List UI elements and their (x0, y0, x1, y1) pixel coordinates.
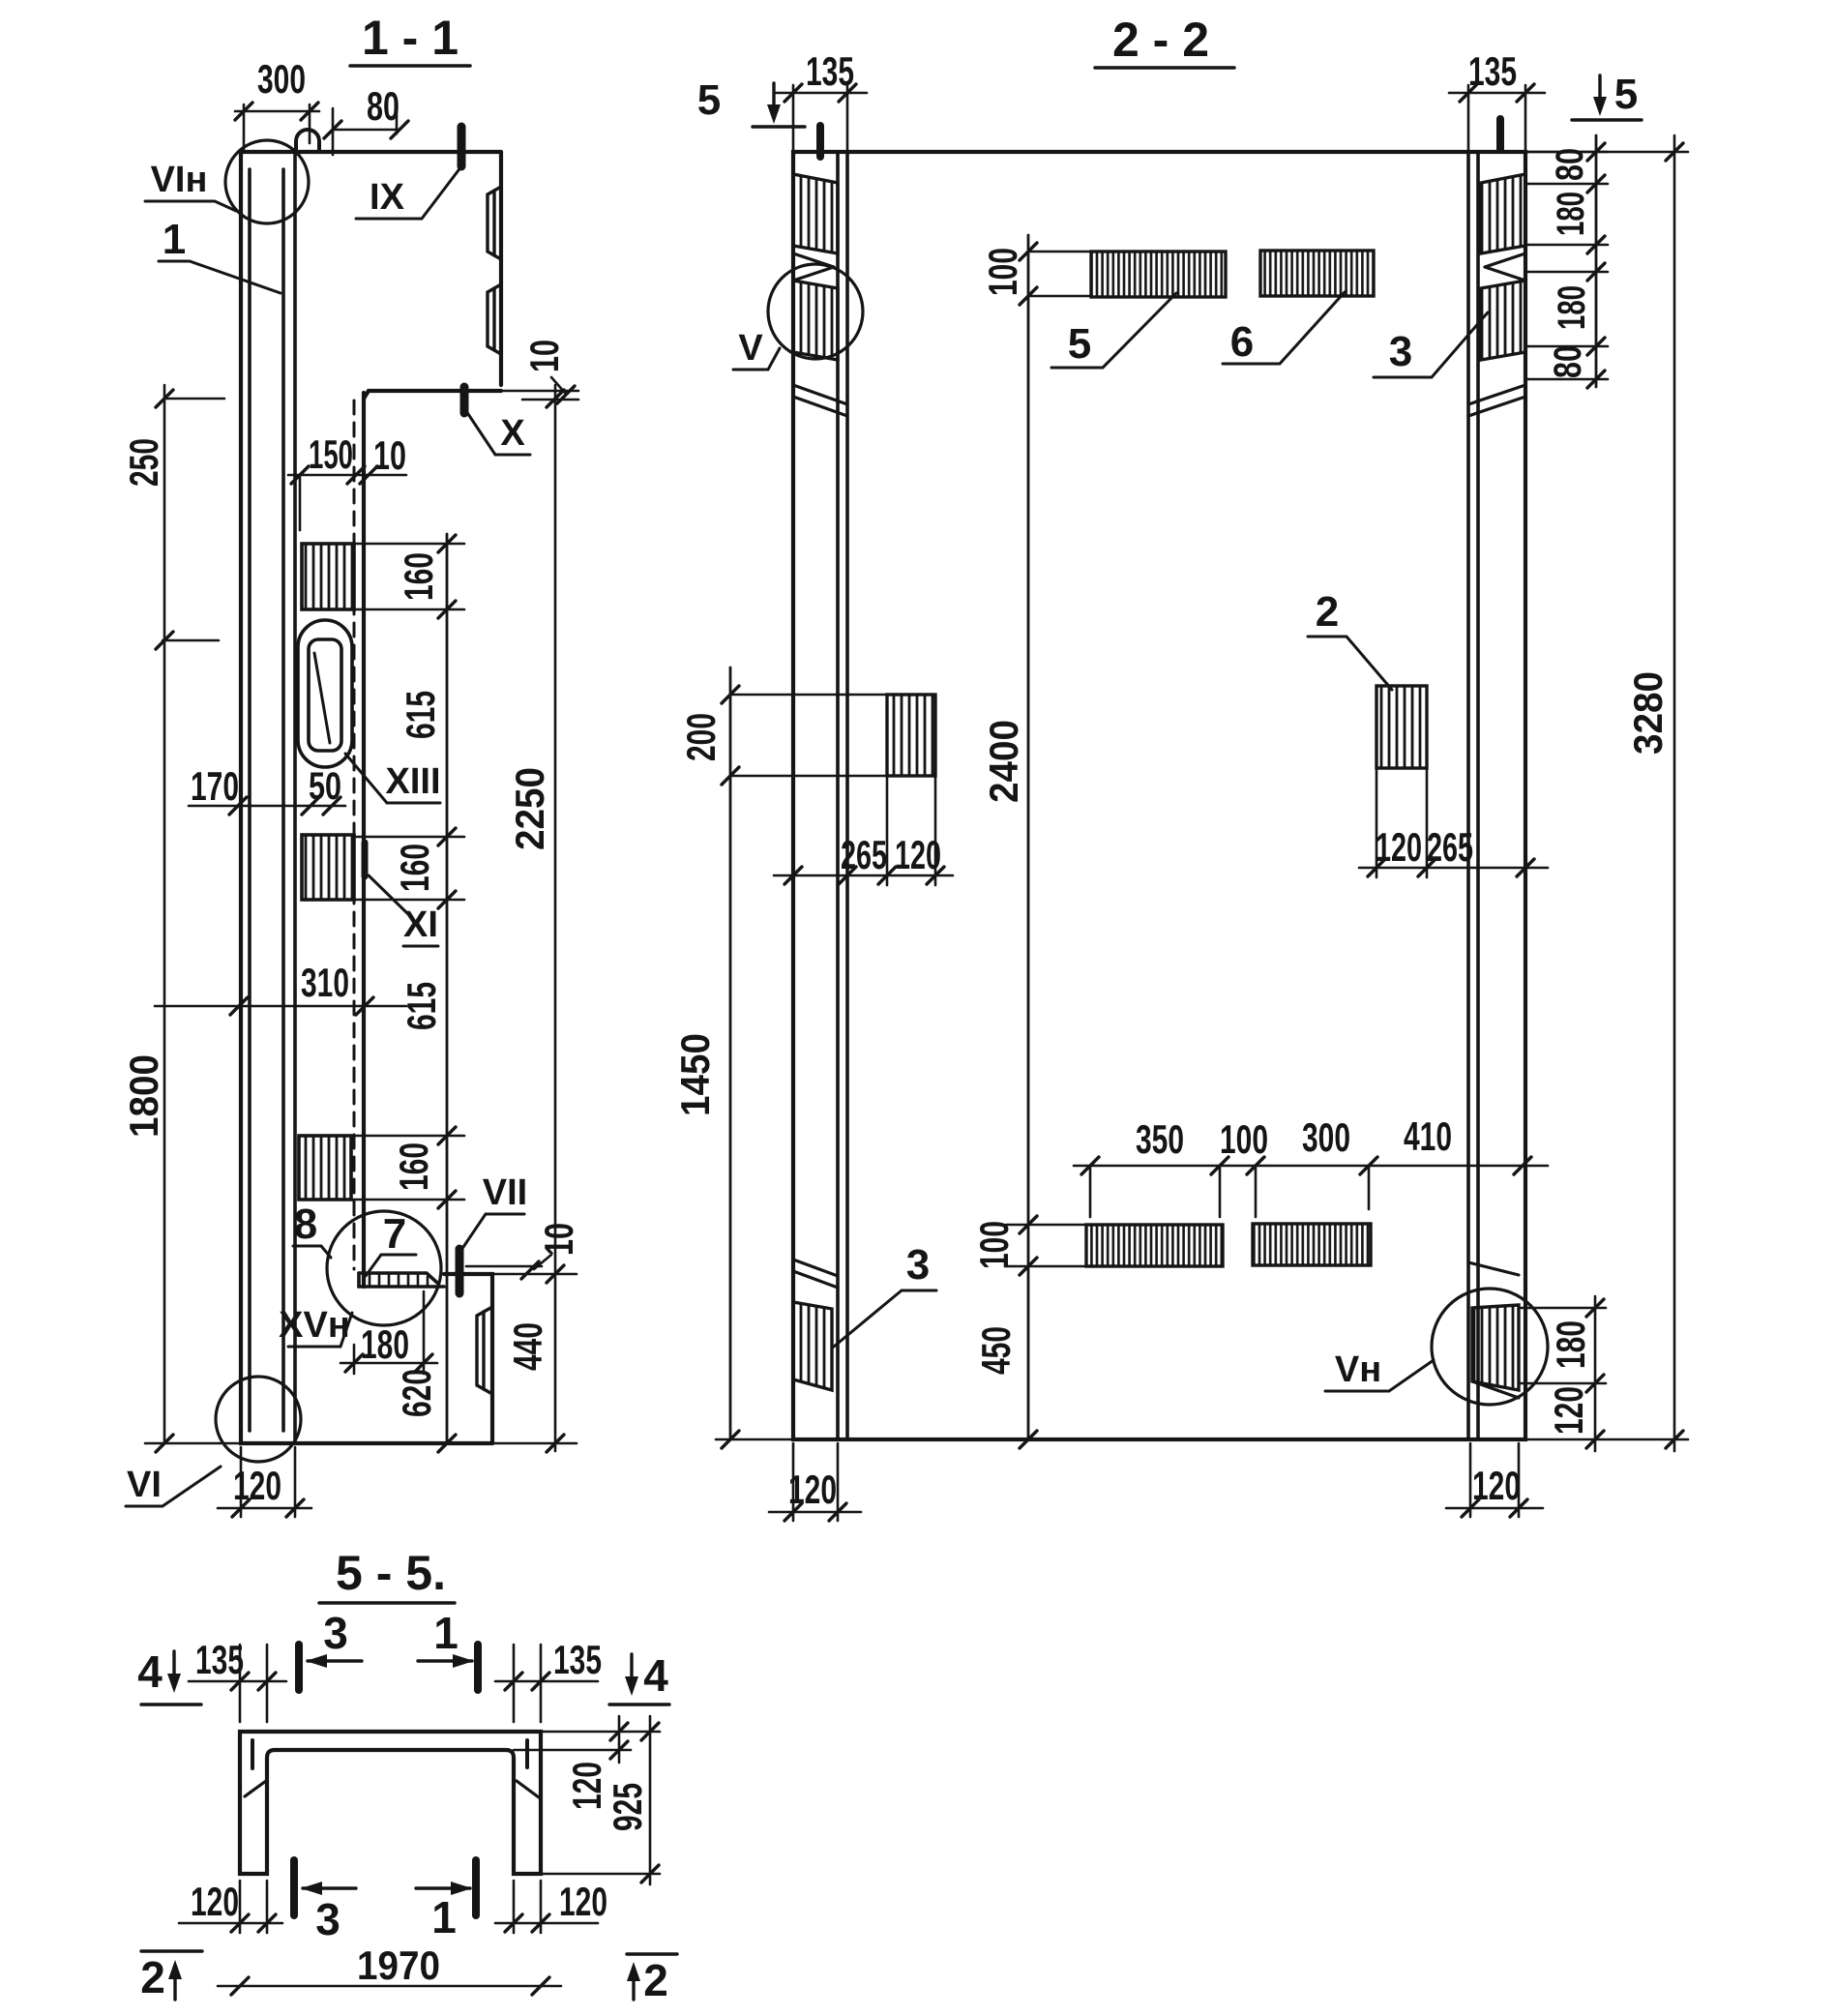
svg-text:150: 150 (309, 431, 353, 477)
svg-text:300: 300 (257, 56, 306, 102)
svg-text:310: 310 (301, 960, 349, 1005)
svg-text:XIII: XIII (385, 761, 440, 802)
svg-text:80: 80 (367, 83, 400, 129)
svg-text:10: 10 (521, 340, 567, 372)
svg-text:120: 120 (1546, 1386, 1591, 1435)
svg-text:300: 300 (1302, 1114, 1350, 1160)
svg-text:VI: VI (127, 1465, 162, 1505)
svg-text:80: 80 (1547, 345, 1589, 378)
svg-text:120: 120 (1376, 824, 1422, 870)
svg-text:180: 180 (1548, 1320, 1593, 1369)
svg-text:170: 170 (191, 763, 239, 809)
svg-text:3: 3 (323, 1608, 348, 1658)
svg-text:180: 180 (1550, 192, 1592, 236)
svg-text:Vн: Vн (1335, 1349, 1381, 1390)
svg-text:4: 4 (137, 1646, 163, 1697)
svg-text:100: 100 (971, 1221, 1017, 1269)
svg-text:1970: 1970 (357, 1942, 440, 1988)
svg-text:XVн: XVн (279, 1305, 350, 1346)
svg-text:1: 1 (433, 1608, 459, 1658)
svg-text:50: 50 (309, 765, 341, 808)
svg-text:10: 10 (373, 432, 406, 478)
svg-text:V: V (738, 328, 763, 369)
svg-text:4: 4 (643, 1650, 668, 1701)
svg-text:IX: IX (370, 177, 405, 218)
svg-text:5: 5 (1068, 320, 1091, 368)
svg-text:2250: 2250 (507, 767, 552, 850)
svg-text:5 - 5.: 5 - 5. (336, 1546, 446, 1600)
svg-text:925: 925 (605, 1783, 650, 1831)
svg-text:615: 615 (398, 691, 443, 739)
svg-text:X: X (500, 413, 525, 454)
svg-text:135: 135 (1468, 48, 1517, 94)
svg-text:1: 1 (431, 1892, 457, 1942)
svg-text:1: 1 (163, 216, 186, 263)
svg-text:440: 440 (505, 1322, 550, 1371)
svg-text:XI: XI (403, 904, 438, 945)
svg-text:2 - 2: 2 - 2 (1112, 13, 1209, 67)
svg-text:VII: VII (483, 1172, 527, 1213)
svg-text:265: 265 (1427, 824, 1473, 870)
svg-text:1 - 1: 1 - 1 (362, 11, 459, 65)
svg-text:180: 180 (1551, 285, 1593, 330)
svg-text:350: 350 (1136, 1116, 1184, 1162)
svg-text:120: 120 (1472, 1463, 1521, 1508)
svg-text:160: 160 (391, 1142, 436, 1191)
svg-text:410: 410 (1404, 1113, 1452, 1159)
svg-text:265: 265 (841, 832, 887, 877)
svg-text:2: 2 (643, 1955, 668, 2005)
svg-text:450: 450 (973, 1326, 1019, 1375)
svg-text:7: 7 (383, 1210, 406, 1258)
svg-text:160: 160 (396, 552, 441, 601)
svg-text:120: 120 (233, 1463, 281, 1508)
svg-text:2: 2 (140, 1952, 165, 2002)
svg-text:620: 620 (394, 1369, 439, 1417)
svg-text:100: 100 (1220, 1116, 1268, 1162)
svg-text:5: 5 (697, 76, 721, 124)
svg-text:250: 250 (121, 438, 166, 487)
svg-text:120: 120 (559, 1879, 607, 1924)
svg-text:135: 135 (195, 1637, 244, 1682)
svg-text:3280: 3280 (1625, 671, 1671, 755)
svg-text:3: 3 (1389, 328, 1412, 375)
svg-text:8: 8 (294, 1201, 317, 1248)
svg-text:135: 135 (553, 1637, 602, 1682)
svg-text:5: 5 (1614, 71, 1638, 118)
svg-text:100: 100 (980, 248, 1025, 296)
svg-text:135: 135 (806, 48, 854, 94)
svg-text:120: 120 (191, 1879, 239, 1924)
svg-text:6: 6 (1230, 318, 1254, 366)
svg-text:180: 180 (361, 1321, 409, 1367)
svg-text:2: 2 (1316, 588, 1339, 636)
svg-text:120: 120 (788, 1467, 837, 1512)
svg-text:120: 120 (564, 1762, 609, 1810)
svg-text:2400: 2400 (981, 720, 1026, 803)
svg-text:160: 160 (392, 844, 437, 892)
svg-text:10: 10 (536, 1223, 581, 1256)
svg-text:3: 3 (315, 1894, 340, 1944)
svg-text:120: 120 (895, 832, 941, 877)
svg-text:VIн: VIн (151, 160, 208, 200)
svg-text:3: 3 (906, 1241, 930, 1289)
svg-text:1800: 1800 (121, 1054, 166, 1138)
svg-text:1450: 1450 (672, 1033, 718, 1116)
svg-text:200: 200 (678, 713, 724, 761)
